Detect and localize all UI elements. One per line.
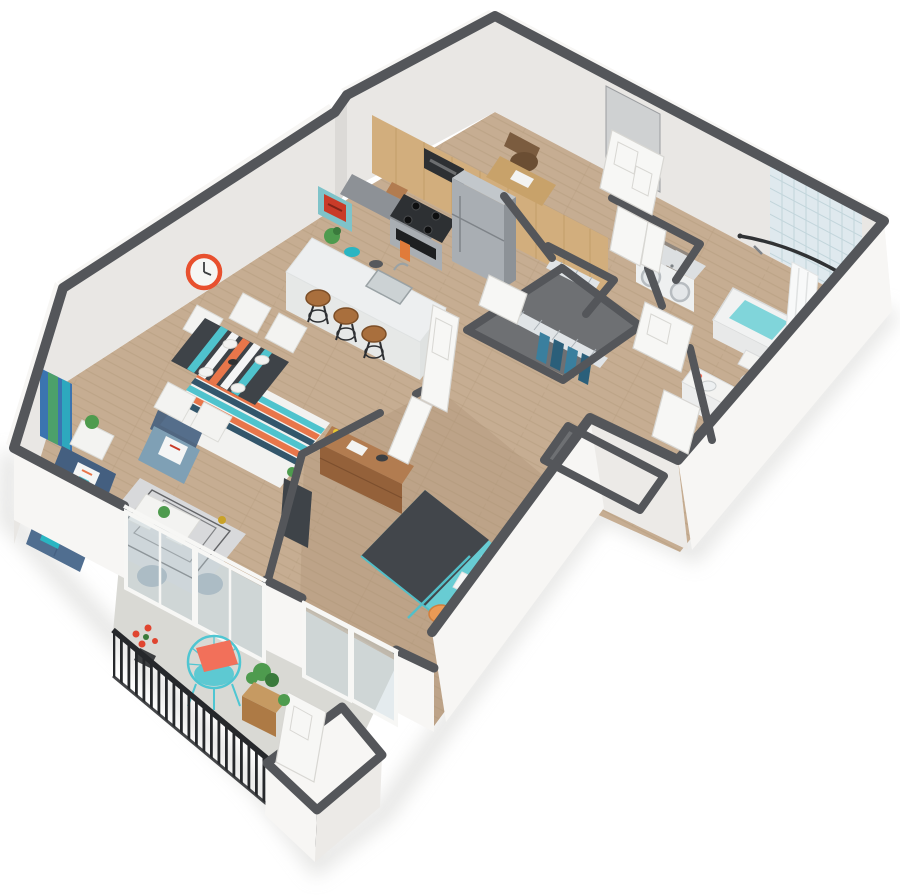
dryer-door bbox=[671, 283, 689, 301]
dresser-bowl bbox=[376, 455, 388, 462]
planter-plant bbox=[246, 672, 258, 684]
flower bbox=[133, 631, 140, 638]
flower-leaf bbox=[143, 634, 149, 640]
table-lamp bbox=[218, 516, 226, 524]
flower bbox=[152, 638, 158, 644]
decor-bowl-teal bbox=[344, 247, 360, 257]
centerpiece bbox=[228, 359, 238, 365]
flower bbox=[139, 641, 146, 648]
side-table-plant bbox=[85, 415, 99, 429]
art-stripe bbox=[62, 379, 70, 451]
flower bbox=[145, 625, 152, 632]
control-knob bbox=[670, 264, 673, 267]
art-stripe bbox=[48, 372, 58, 445]
planter-plant bbox=[265, 673, 279, 687]
storage-plant bbox=[278, 694, 290, 706]
stool-seat bbox=[362, 326, 386, 342]
decor-bowl-dark bbox=[369, 260, 383, 268]
stool-seat bbox=[334, 308, 358, 324]
wall-clock bbox=[188, 256, 220, 288]
island-plant-leaf bbox=[333, 227, 341, 235]
rod-finial bbox=[738, 234, 743, 239]
right-corner-face bbox=[884, 221, 892, 317]
coffee-table-plant bbox=[158, 506, 170, 518]
stool-seat bbox=[306, 290, 330, 306]
floor-plan-render bbox=[0, 0, 900, 896]
floor-plan-stage: One-Bedroom Apartment 3D Isometric Floor… bbox=[0, 0, 900, 896]
